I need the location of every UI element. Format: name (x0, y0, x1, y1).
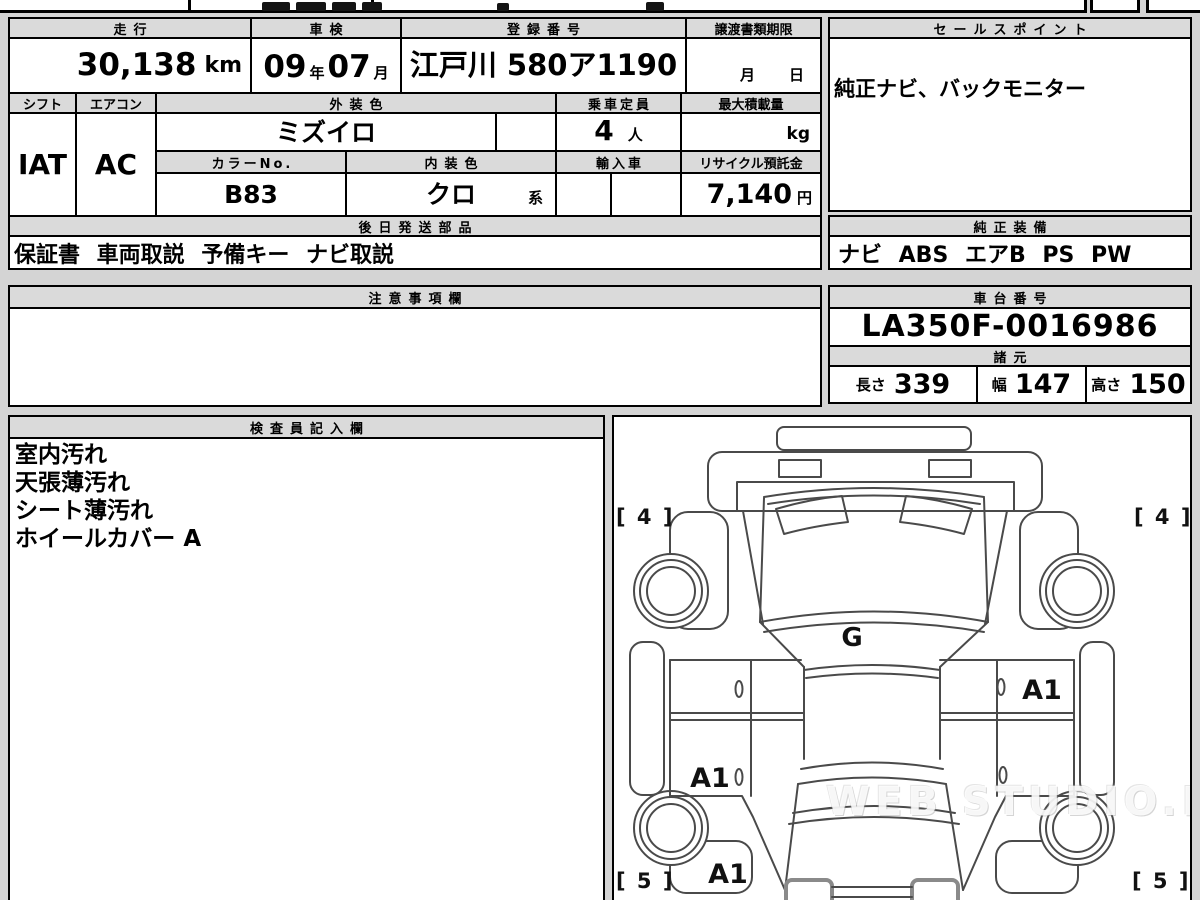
interior-color-header: 内装色 (345, 150, 557, 174)
aircon-value: AC (75, 112, 157, 217)
cut-off-text-fragment (362, 2, 382, 11)
cut-off-text-fragment (332, 2, 356, 11)
inspector-notes-header: 検査員記入欄 (8, 415, 605, 439)
spec-height: 高さ 150 (1085, 365, 1192, 404)
diagram-mark-windshield: G (824, 623, 880, 653)
cut-off-row-fragment (1146, 0, 1200, 13)
spec-width: 幅 147 (976, 365, 1087, 404)
diagram-mark-rear-left: [ 5 ] (616, 869, 674, 893)
interior-color-value: クロ 系 (345, 172, 557, 217)
diagram-mark-rear-right: [ 5 ] (1132, 869, 1190, 893)
inspector-notes-body: 室内汚れ 天張薄汚れ シート薄汚れ ホイールカバー A (8, 437, 605, 900)
transfer-docs-header: 譲渡書類期限 (685, 17, 822, 39)
transfer-docs-value: 月 日 (685, 37, 822, 94)
genuine-equipment-body: ナビ ABS エアB PS PW (828, 235, 1192, 270)
shift-header: シフト (8, 92, 77, 114)
diagram-mark-right-door: A1 (1012, 675, 1072, 706)
diagram-mark-front-right: [ 4 ] (1134, 505, 1192, 529)
genuine-equipment-header: 純正装備 (828, 215, 1192, 237)
recycle-deposit-value: 7,140 円 (680, 172, 822, 217)
car-diagram-panel: [ 4 ] [ 4 ] G A1 A1 A1 [ 5 ] [ 5 ] WEB S… (612, 415, 1192, 900)
chassis-number-header: 車台番号 (828, 285, 1192, 309)
notes-header: 注意事項欄 (8, 285, 822, 309)
inspection-value: 09 年 07 月 (250, 37, 402, 94)
chassis-number-value: LA350F-0016986 (828, 307, 1192, 347)
max-load-header: 最大積載量 (680, 92, 822, 114)
auction-sheet-page: 走行 車検 登録番号 譲渡書類期限 30,138 km 09 年 07 月 江戸… (0, 0, 1200, 900)
cut-off-text-fragment (497, 3, 509, 11)
cut-off-row-fragment (374, 0, 1087, 13)
diagram-mark-rear-panel: A1 (698, 859, 758, 890)
import-empty-cell (555, 172, 612, 217)
inspection-header: 車検 (250, 17, 402, 39)
diagram-mark-front-left: [ 4 ] (616, 505, 674, 529)
capacity-value: 4 人 (555, 112, 682, 152)
notes-body (8, 307, 822, 407)
inspector-note: ホイールカバー A (10, 525, 201, 553)
inspector-note: 天張薄汚れ (10, 469, 130, 497)
diagram-mark-left-door: A1 (680, 763, 740, 794)
exterior-color-value: ミズイロ (155, 112, 497, 152)
recycle-deposit-header: リサイクル預託金 (680, 150, 822, 174)
registration-header: 登録番号 (400, 17, 687, 39)
shift-value: IAT (8, 112, 77, 217)
sales-points-body: 純正ナビ、バックモニター (828, 37, 1192, 212)
inspector-note: シート薄汚れ (10, 497, 153, 525)
aircon-header: エアコン (75, 92, 157, 114)
import-empty-cell (610, 172, 682, 217)
registration-value: 江戸川 580ア1190 (400, 37, 687, 94)
cut-off-row-fragment (1090, 0, 1140, 13)
capacity-header: 乗車定員 (555, 92, 682, 114)
import-header: 輸入車 (555, 150, 682, 174)
later-parts-value: 保証書 車両取説 予備キー ナビ取説 (8, 235, 822, 270)
mileage-header: 走行 (8, 17, 252, 39)
exterior-color-empty-cell (495, 112, 557, 152)
mileage-value: 30,138 km (8, 37, 252, 94)
cut-off-text-fragment (646, 2, 664, 11)
car-top-view-diagram (614, 417, 1192, 900)
cut-off-row-divider (188, 0, 191, 13)
cut-off-text-fragment (296, 2, 326, 11)
inspector-note: 室内汚れ (10, 441, 107, 469)
color-no-header: カラーNo. (155, 150, 347, 174)
specs-header: 諸元 (828, 345, 1192, 367)
max-load-value: kg (680, 112, 822, 152)
watermark: WEB STUDIO.PRO (826, 779, 1192, 825)
spec-length: 長さ 339 (828, 365, 978, 404)
sales-points-header: セールスポイント (828, 17, 1192, 39)
color-no-value: B83 (155, 172, 347, 217)
exterior-color-header: 外装色 (155, 92, 557, 114)
cut-off-text-fragment (262, 2, 290, 11)
later-parts-header: 後日発送部品 (8, 215, 822, 237)
